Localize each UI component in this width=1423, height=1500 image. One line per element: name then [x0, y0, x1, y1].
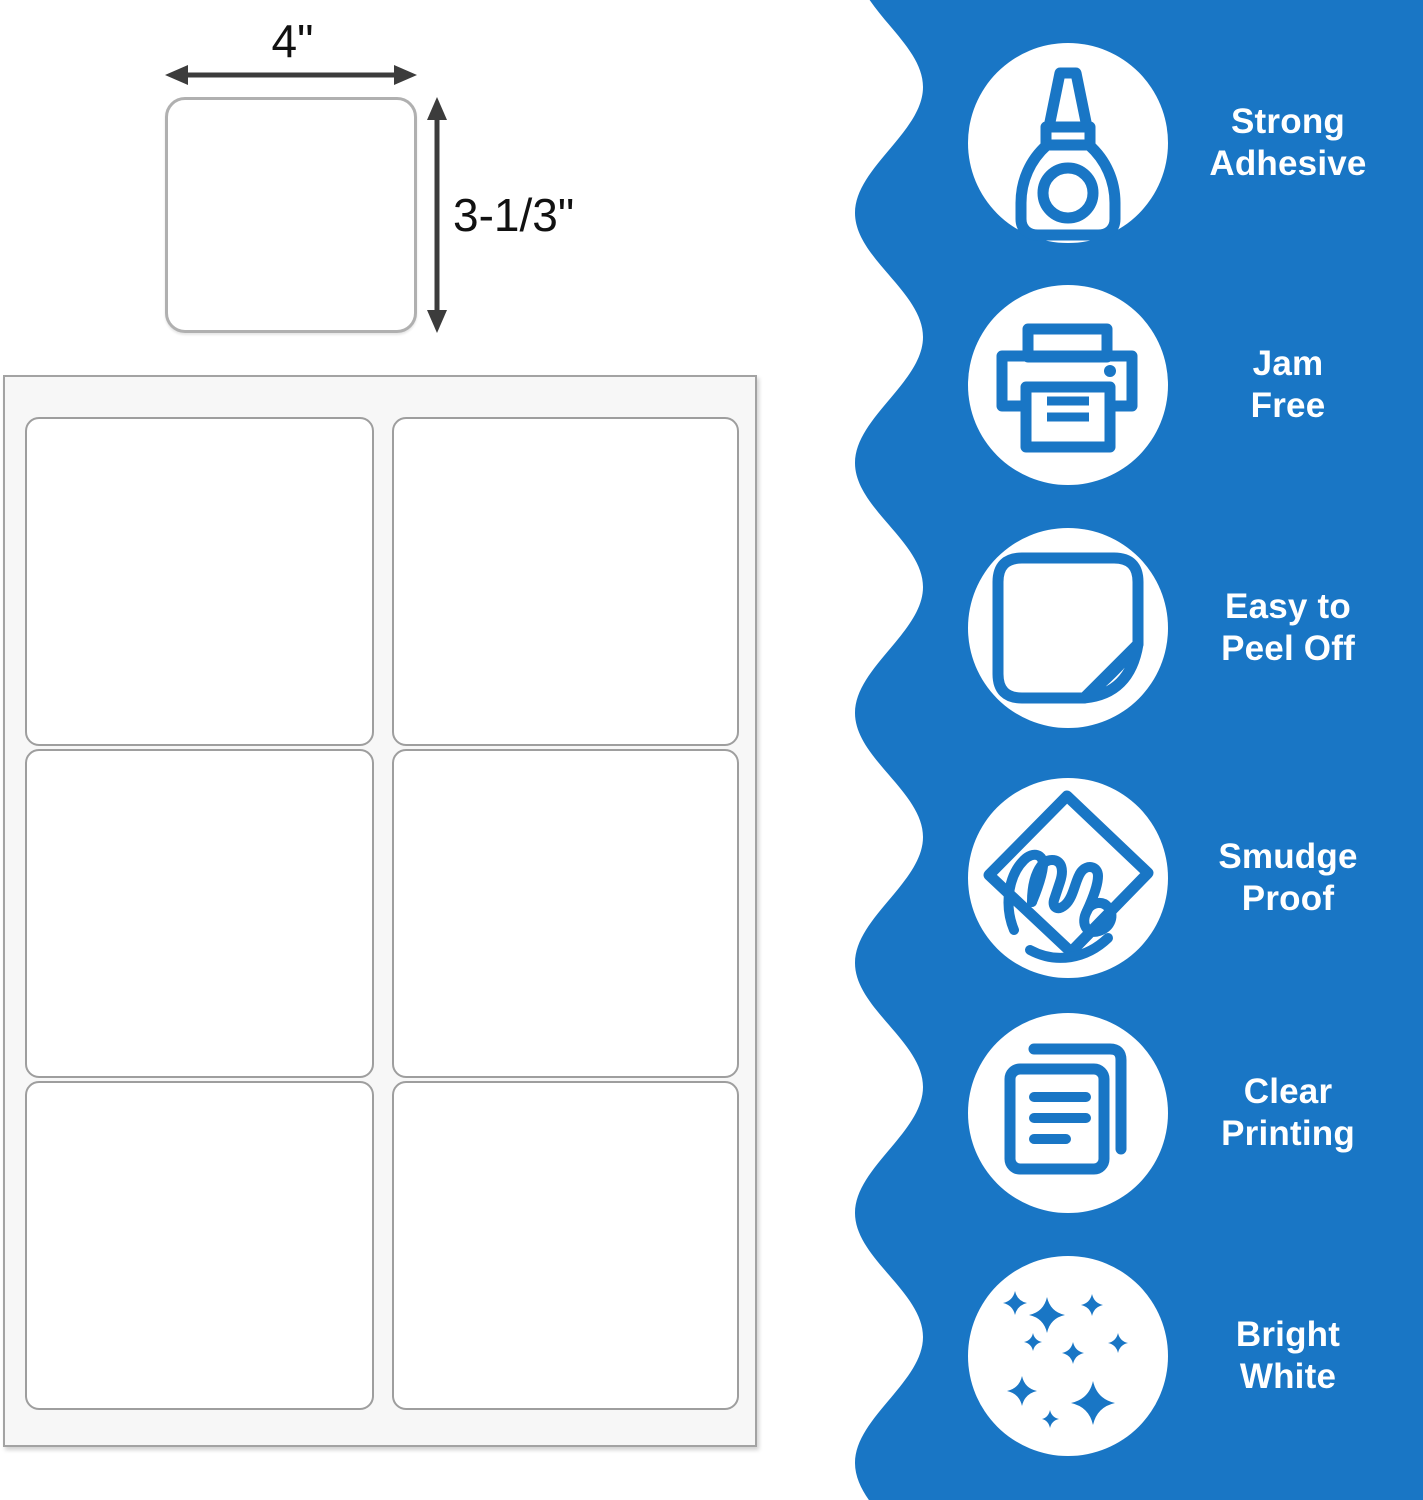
sheet-label-cell — [25, 417, 374, 746]
label-sheet — [3, 375, 757, 1447]
feature-label: Easy to Peel Off — [1168, 576, 1408, 680]
feature-label-line: Free — [1251, 385, 1326, 427]
sheet-label-cell — [392, 417, 739, 746]
feature-label-line: Proof — [1242, 878, 1334, 920]
sheet-label-cell — [392, 749, 739, 1078]
feature-badge-strong-adhesive — [968, 43, 1168, 243]
sheet-label-cell — [25, 749, 374, 1078]
feature-badge-easy-peel — [968, 528, 1168, 728]
printer-icon — [968, 285, 1168, 485]
feature-label-line: Smudge — [1218, 836, 1357, 878]
feature-label-line: Printing — [1221, 1113, 1355, 1155]
feature-label-line: Bright — [1236, 1314, 1340, 1356]
feature-label: Smudge Proof — [1168, 826, 1408, 930]
arrow-up-head — [427, 97, 447, 120]
sparkles-icon — [968, 1256, 1168, 1456]
feature-label: Strong Adhesive — [1168, 91, 1408, 195]
feature-label: Clear Printing — [1168, 1061, 1408, 1165]
feature-label-line: Peel Off — [1221, 628, 1355, 670]
feature-badge-clear-printing — [968, 1013, 1168, 1213]
feature-badge-jam-free — [968, 285, 1168, 485]
sheet-label-cell — [392, 1081, 739, 1410]
feature-label-line: Easy to — [1225, 586, 1351, 628]
feature-label-line: Strong — [1231, 101, 1345, 143]
feature-label-line: Clear — [1244, 1071, 1333, 1113]
feature-label-line: Jam — [1253, 343, 1324, 385]
feature-badge-smudge-proof — [968, 778, 1168, 978]
feature-label: Jam Free — [1168, 333, 1408, 437]
arrow-right-head — [394, 65, 417, 85]
dimension-arrows — [0, 0, 500, 360]
sheet-label-cell — [25, 1081, 374, 1410]
feature-label-line: White — [1240, 1356, 1336, 1398]
feature-badge-bright-white — [968, 1256, 1168, 1456]
arrow-left-head — [165, 65, 188, 85]
documents-icon — [968, 1013, 1168, 1213]
peel-sticker-icon — [968, 528, 1168, 728]
feature-label: Bright White — [1168, 1304, 1408, 1408]
glue-bottle-icon — [968, 43, 1168, 243]
arrow-down-head — [427, 310, 447, 333]
feature-label-line: Adhesive — [1209, 143, 1366, 185]
smudge-hand-icon — [968, 778, 1168, 978]
product-infographic: 4" 3-1/3" Strong Adhesive — [0, 0, 1423, 1500]
